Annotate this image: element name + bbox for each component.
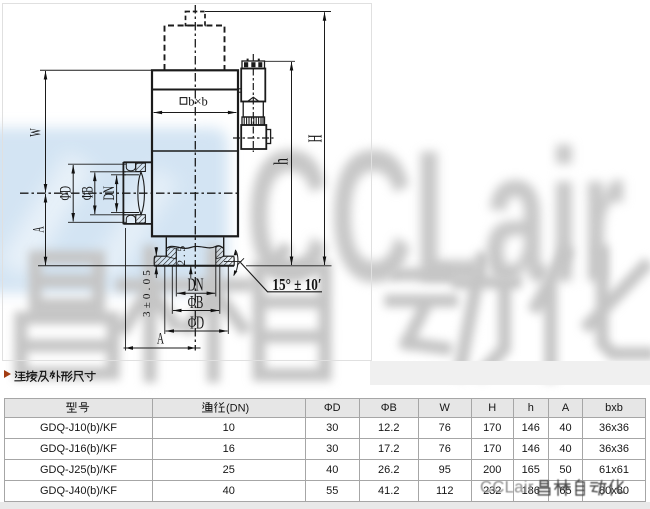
svg-text:CCLair: CCLair [480, 479, 534, 497]
svg-text:(DN): (DN) [226, 403, 249, 415]
